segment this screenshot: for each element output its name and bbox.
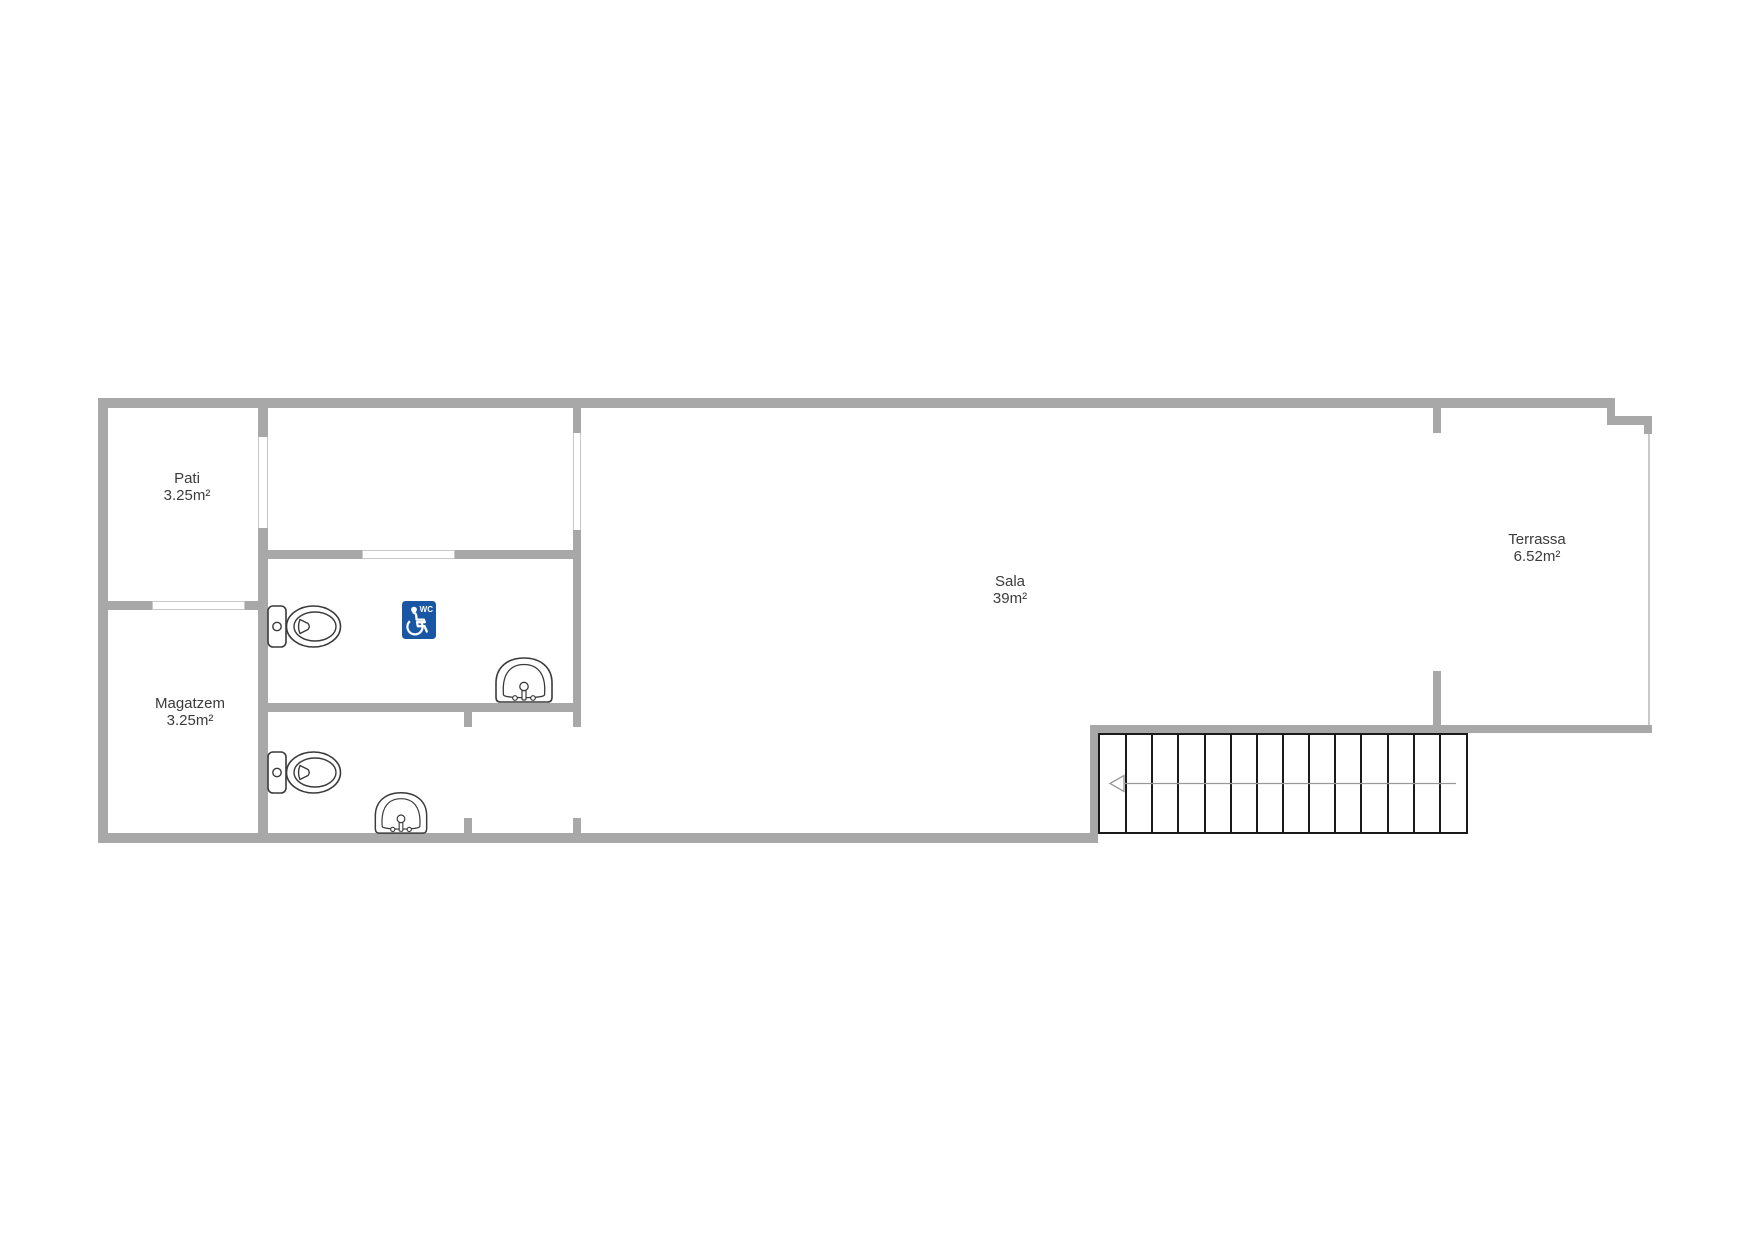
room-name: Magatzem bbox=[155, 695, 225, 712]
magatzem-wall-segment-right bbox=[245, 601, 258, 610]
floor-plan: Pati 3.25m² Magatzem 3.25m² Sala 39m² Te… bbox=[0, 0, 1753, 1240]
room-label-sala: Sala 39m² bbox=[993, 573, 1027, 607]
room-label-terrassa: Terrassa 6.52m² bbox=[1508, 531, 1566, 565]
staircase bbox=[1098, 733, 1468, 834]
terrassa-left-wall-bottom bbox=[1433, 671, 1441, 725]
pati-hall-wall-top bbox=[258, 408, 268, 437]
room-label-pati: Pati 3.25m² bbox=[164, 470, 211, 504]
terrace-step-wall-horizontal bbox=[1615, 416, 1652, 425]
stair-direction-arrow bbox=[1100, 735, 1466, 832]
room-area: 6.52m² bbox=[1508, 548, 1566, 565]
sala-terrace-stair-wall-band bbox=[1090, 725, 1652, 733]
wall-top bbox=[98, 398, 1615, 408]
toilet-icon bbox=[264, 747, 344, 799]
terrassa-left-wall-top bbox=[1433, 408, 1441, 433]
sink-icon bbox=[495, 655, 553, 703]
toilet-icon bbox=[264, 601, 344, 653]
wall-bottom bbox=[98, 833, 1098, 843]
magatzem-wall-segment-left bbox=[108, 601, 152, 610]
room-name: Terrassa bbox=[1508, 531, 1566, 548]
wc-bathroom-wall bbox=[268, 703, 581, 712]
terrace-railing bbox=[1648, 434, 1650, 725]
room-area: 39m² bbox=[993, 590, 1027, 607]
hall-wc-wall-left bbox=[268, 550, 362, 559]
bathroom-vestibule-wall-bottom bbox=[464, 818, 472, 833]
arrow-left-icon bbox=[1110, 776, 1124, 792]
room-area: 3.25m² bbox=[155, 712, 225, 729]
hall-sala-wall-mid bbox=[573, 530, 581, 727]
bathroom-vestibule-wall-top bbox=[464, 712, 472, 727]
hall-sala-wall-top bbox=[573, 408, 581, 433]
terrace-parapet-stub bbox=[1644, 425, 1652, 434]
sink-icon bbox=[373, 790, 429, 834]
magatzem-door-opening bbox=[152, 601, 245, 610]
wc-sign-label: WC bbox=[420, 605, 434, 614]
room-name: Pati bbox=[164, 470, 211, 487]
hall-door-opening bbox=[362, 550, 455, 559]
room-name: Sala bbox=[993, 573, 1027, 590]
sala-wall-bottom-stub bbox=[573, 818, 581, 833]
pati-window bbox=[258, 437, 268, 528]
wall-left bbox=[98, 408, 108, 843]
hall-wc-wall-right bbox=[455, 550, 581, 559]
room-area: 3.25m² bbox=[164, 487, 211, 504]
terrace-step-wall-vertical bbox=[1607, 398, 1615, 425]
stair-left-wall bbox=[1090, 733, 1098, 843]
sala-window bbox=[573, 433, 581, 530]
accessible-wc-sign: WC bbox=[402, 601, 436, 639]
room-label-magatzem: Magatzem 3.25m² bbox=[155, 695, 225, 729]
